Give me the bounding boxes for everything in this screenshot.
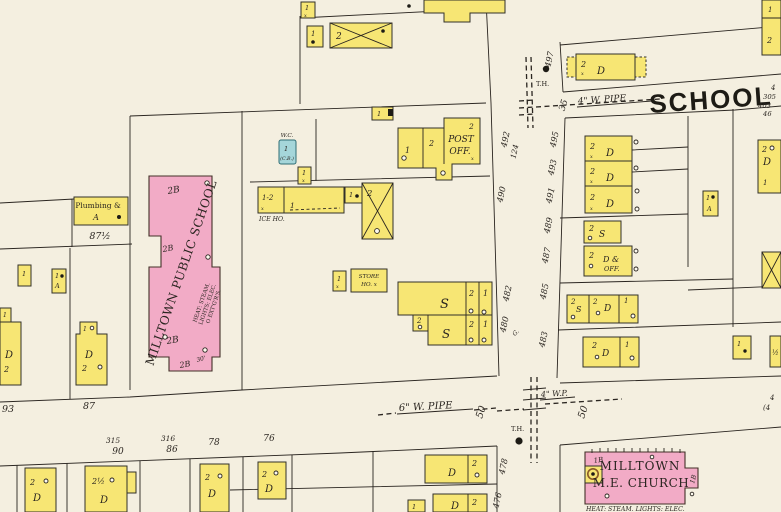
b487-office: OFF. (604, 265, 619, 273)
building-stable-2: 2 (330, 23, 392, 48)
building-small-shed-7: 1 (18, 265, 31, 286)
shed3-mark: x (304, 13, 307, 19)
dw78-type: D (207, 489, 216, 500)
building-stable-1: 2 (362, 183, 393, 239)
pipe-label-4wp: 4" W.P. (540, 389, 568, 399)
post-mark: x (471, 156, 474, 162)
building-small-shed-3: 1 x (301, 2, 315, 19)
dwle-floors: 2 (3, 365, 9, 374)
ice-house-label: ICE HO. (258, 216, 285, 223)
shed-floor: 1 (302, 169, 306, 177)
shed6-mark: x (336, 284, 339, 290)
dw78-floors: 2 (204, 473, 210, 482)
dw495-type: D (605, 148, 614, 159)
building-dwelling-493: 2 x D (585, 161, 638, 186)
store-house-label-1: STORE (359, 274, 379, 280)
hydrant-label-top: T.H. (536, 80, 549, 88)
stable1-floors: 2 (366, 189, 372, 199)
building-small-shed-5: 1 (372, 107, 393, 120)
dw495-floors: 2 (589, 142, 595, 151)
building-dwelling-483: 2 D 1 (583, 337, 639, 367)
number-87: 87 (83, 401, 96, 412)
building-stable-right-partial (762, 252, 781, 288)
store-upper-s: S (440, 297, 449, 312)
number-93: 93 (2, 404, 14, 415)
b487-floors: 2 (588, 251, 594, 260)
post-floor-1: 1 (405, 146, 410, 155)
post-office-name-1: POST (447, 135, 475, 145)
building-dwelling-495: 2 x D (585, 136, 638, 161)
dw86-floors: 2½ (91, 477, 105, 486)
dw90-floors: 2 (29, 478, 35, 487)
building-dwelling-78: 2 D (200, 464, 229, 512)
ice-floors-a: 1-2 (262, 194, 274, 202)
dw76-type: D (264, 484, 273, 495)
shed4-floor: 1 (311, 30, 315, 38)
dw493-type: D (605, 173, 614, 184)
building-dwelling-491: 2 x D (585, 186, 639, 213)
shed3-floor: 1 (305, 4, 309, 12)
auto3-floor: 1 (737, 340, 741, 348)
store-lower-s: S (442, 327, 450, 341)
dw493-floors: 2 (589, 167, 595, 176)
dw86-type: D (99, 495, 108, 506)
post-floor-2: 2 (428, 139, 434, 148)
dwml-type: D (450, 501, 459, 512)
corner-floor2: 2 (766, 36, 772, 45)
building-dwelling-497: 2 x D (567, 54, 646, 80)
brep-floors: ½ (772, 349, 779, 357)
building-dwelling-right-edge: 2 D 1 (758, 140, 781, 193)
number-315: 315 (106, 436, 121, 445)
building-dwelling-90: 2 D (25, 468, 56, 512)
church-heat-note: HEAT: STEAM. LIGHTS: ELEC. (585, 506, 685, 512)
building-auto-house-1: 1 A (52, 269, 66, 293)
b489-type: S (599, 230, 605, 240)
building-dwelling-mid-upper: D 2 (425, 455, 487, 483)
shed6-floor: 1 (337, 275, 341, 283)
dw493-mark: x (590, 179, 593, 185)
wc-label: W.C. (281, 133, 294, 139)
building-milltown-public-school: 2B 2B 2B 2B 30' MILLTOWN PUBLIC SCHOOL H… (143, 176, 223, 371)
stable2-floors: 2 (335, 32, 342, 42)
dw76-floors: 2 (261, 470, 267, 479)
dwle-tab: 1 (3, 312, 7, 319)
shed5-floor: 1 (377, 110, 381, 118)
shed2-floor: 1 (349, 191, 353, 199)
dw497-mark: x (581, 71, 584, 77)
number-305: 305 (763, 93, 776, 101)
number-90: 90 (112, 447, 124, 457)
number-78: 78 (208, 438, 220, 448)
dwl-type: D (84, 350, 93, 361)
store-upper-floor1: 1 (483, 289, 488, 298)
dwmu-type: D (447, 468, 456, 479)
hydrant-dot-bottom (515, 437, 522, 444)
dwre-wing: 1 (763, 179, 767, 187)
store-lower-floor1: 1 (483, 320, 488, 329)
plumbing-label-2: A (92, 213, 99, 222)
building-store-upper: S 2 1 (398, 282, 492, 315)
dwre-type: D (762, 157, 771, 168)
dw90-type: D (32, 493, 41, 504)
dw497-floors: 2 (580, 60, 586, 69)
building-plumbing-shop: Plumbing & A (74, 197, 128, 225)
wc-material: (C.B.) (280, 155, 294, 162)
dw491-mark: x (590, 206, 593, 212)
number-403: 403 (757, 102, 771, 110)
store-lower-floor2: 2 (468, 320, 474, 329)
hydrant-label-bottom: T.H. (511, 425, 524, 433)
building-store-dwelling-485: 2 S 2 D 1 (567, 295, 638, 323)
building-store-house: STORE HO. x (351, 269, 387, 292)
ice-mark: x (261, 206, 264, 212)
store-house-label-2: HO. x (360, 282, 378, 288)
building-small-shed-4: 1 (307, 26, 323, 47)
b485-s: S (576, 305, 582, 314)
dw491-floors: 2 (589, 193, 595, 202)
b485-wing: 1 (624, 297, 628, 305)
shed8-floor: 1 (412, 503, 416, 511)
building-milltown-me-church: 1B MILLTOWN M.E. CHURCH 1B HEAT: STEAM. … (585, 448, 698, 512)
building-dwelling-76: 2 D (258, 462, 286, 499)
building-small-shed-2: 1 (345, 187, 362, 203)
number-316: 316 (161, 434, 176, 443)
b483-type: D (601, 349, 609, 359)
building-dwelling-mid-lower: D 2 (433, 494, 487, 512)
shed-mark: x (302, 178, 305, 184)
church-name-1: MILLTOWN (600, 459, 681, 473)
dw495-mark: x (590, 154, 593, 160)
store-upper-floor2: 2 (468, 289, 474, 298)
number-76: 76 (263, 434, 275, 444)
b483-wing: 1 (625, 341, 629, 349)
number-46: 46 (762, 110, 772, 118)
lot-number-87half: 87½ (89, 231, 110, 242)
dwre-floors: 2 (761, 145, 767, 154)
building-store-489: 2 S (584, 221, 621, 243)
auto2-floor: 1 (706, 194, 710, 202)
building-dwelling-office-487: 2 D & OFF. (584, 246, 638, 276)
b483-floors: 2 (591, 341, 597, 350)
plumbing-label-1: Plumbing & (75, 201, 121, 210)
shed7-floor: 1 (22, 270, 26, 278)
dwle-type: D (4, 350, 13, 361)
b485-d: D (603, 304, 611, 314)
church-name-2: M.E. CHURCH (593, 476, 689, 490)
dwl-floors: 2 (81, 364, 87, 373)
b487-type: D & (602, 255, 619, 264)
building-small-shed-1: 1 x (298, 167, 311, 184)
sanborn-map: Plumbing & A 87½ 2B 2B 2B 2B 30' MILLTOW… (0, 0, 781, 512)
auto1-floor: 1 (55, 272, 59, 280)
ice-floors-b: 1 (290, 201, 295, 210)
number-4-partial: 4 (770, 84, 775, 92)
dwmu-floors: 2 (471, 459, 477, 468)
number-4-paren: (4 (763, 404, 770, 412)
number-4-bottom: 4 (769, 394, 774, 402)
number-86: 86 (166, 445, 178, 455)
b485-d-floors: 2 (592, 298, 598, 306)
dw497-type: D (596, 66, 605, 77)
building-auto-house-3: 1 (733, 336, 751, 359)
building-small-shed-6: 1 x (333, 271, 346, 291)
building-corner-partial: 1 2 (762, 0, 781, 55)
post-office-name-2: OFF. (449, 147, 470, 157)
store-lower-cell: 2 (416, 317, 422, 325)
post-floor-3: 2 (468, 122, 474, 131)
building-right-edge-partial: ½ (770, 336, 781, 367)
dwml-floors: 2 (471, 498, 477, 507)
wc-floor: 1 (284, 145, 288, 153)
map-canvas: Plumbing & A 87½ 2B 2B 2B 2B 30' MILLTOW… (0, 0, 781, 512)
dwl-tab: 1 (83, 326, 87, 333)
corner-floor1: 1 (768, 6, 772, 14)
auto1-label: A (54, 282, 60, 290)
building-auto-house-2: 1 A (703, 191, 718, 216)
building-small-shed-8: 1 (408, 500, 425, 512)
dw491-type: D (605, 199, 614, 210)
b489-floors: 2 (588, 224, 594, 233)
auto2-label: A (706, 205, 712, 213)
